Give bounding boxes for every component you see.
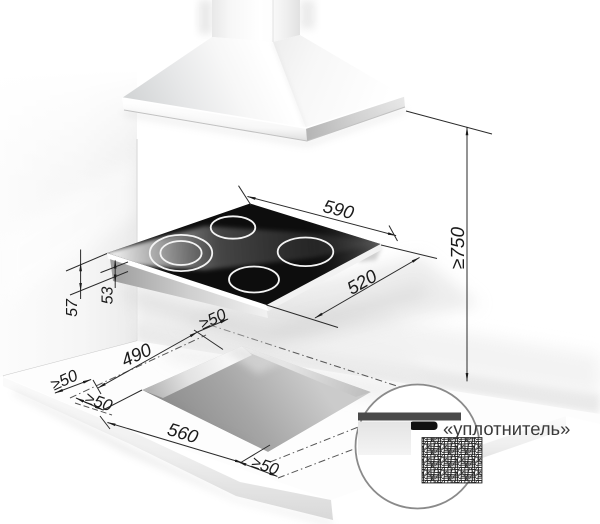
svg-text:≥750: ≥750 xyxy=(448,227,469,270)
svg-text:«уплотнитель»: «уплотнитель» xyxy=(443,418,570,439)
svg-text:53: 53 xyxy=(100,287,117,305)
svg-text:57: 57 xyxy=(64,298,81,317)
